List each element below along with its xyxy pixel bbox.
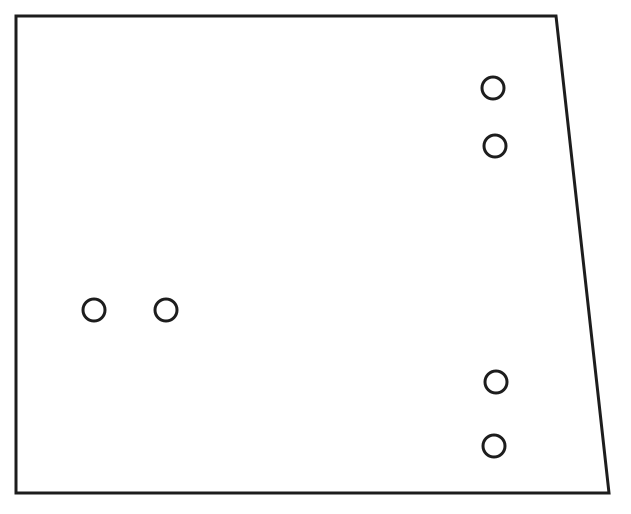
panel-outline bbox=[16, 16, 609, 493]
panel-diagram bbox=[0, 0, 631, 514]
mounting-hole bbox=[155, 299, 177, 321]
mounting-hole bbox=[484, 135, 506, 157]
mounting-hole bbox=[83, 299, 105, 321]
mounting-hole bbox=[483, 435, 505, 457]
diagram-canvas bbox=[0, 0, 631, 514]
mounting-hole bbox=[485, 371, 507, 393]
mounting-hole bbox=[482, 77, 504, 99]
